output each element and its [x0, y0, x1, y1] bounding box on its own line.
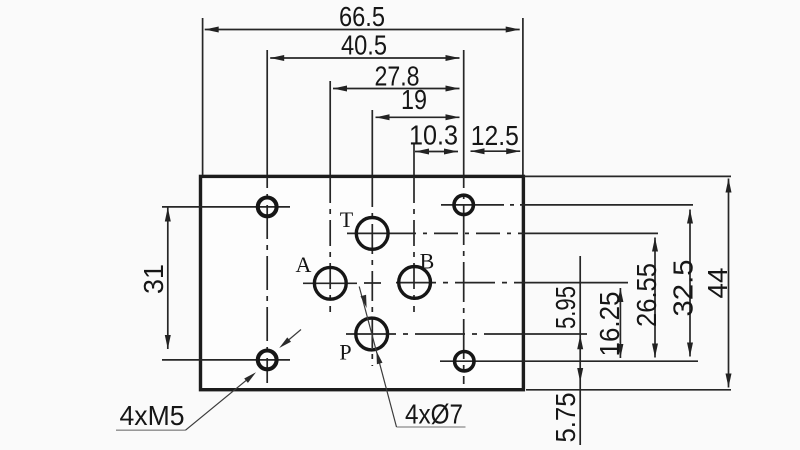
svg-text:12.5: 12.5 [471, 120, 519, 151]
svg-text:10.3: 10.3 [409, 120, 458, 151]
svg-text:4xØ7: 4xØ7 [405, 399, 463, 430]
svg-text:66.5: 66.5 [339, 1, 385, 32]
svg-text:4xM5: 4xM5 [120, 400, 185, 431]
svg-text:A: A [296, 252, 312, 277]
svg-text:19: 19 [401, 84, 427, 115]
svg-text:P: P [339, 340, 351, 365]
svg-text:5.95: 5.95 [550, 286, 581, 329]
svg-text:31: 31 [138, 264, 169, 294]
svg-text:26.55: 26.55 [631, 263, 662, 327]
svg-text:5.75: 5.75 [550, 393, 581, 443]
svg-text:16.25: 16.25 [594, 292, 625, 357]
svg-text:32.5: 32.5 [667, 260, 698, 317]
svg-text:B: B [420, 249, 435, 274]
svg-text:44: 44 [702, 268, 733, 299]
svg-text:T: T [340, 207, 354, 232]
svg-text:40.5: 40.5 [341, 30, 387, 61]
